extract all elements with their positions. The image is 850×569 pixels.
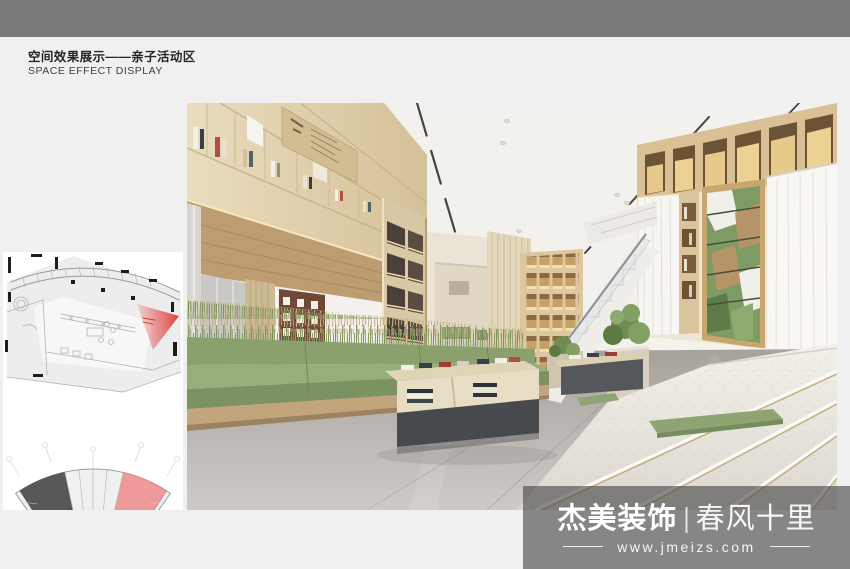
floor-plan-panel (3, 252, 183, 510)
brand-website: www.jmeizs.com (617, 539, 755, 555)
detail-plan (5, 254, 181, 392)
section-header: 空间效果展示——亲子活动区 SPACE EFFECT DISPLAY (28, 50, 196, 78)
presentation-slide: 空间效果展示——亲子活动区 SPACE EFFECT DISPLAY (0, 0, 850, 569)
floor-plan-drawing (3, 252, 183, 510)
brand-divider: | (683, 500, 689, 537)
key-plan (7, 443, 180, 511)
watermark-url-row: www.jmeizs.com (563, 539, 809, 555)
bookshelf-pier (679, 191, 699, 334)
brand-slogan: 春风十里 (696, 503, 816, 535)
page-title: 空间效果展示——亲子活动区 (28, 50, 196, 64)
interior-render (187, 103, 837, 510)
dash-left (563, 546, 603, 548)
curtain-right (767, 163, 837, 353)
render-illustration (187, 103, 837, 510)
watermark-brand-row: 杰美装饰 | 春风十里 (557, 503, 815, 535)
brand-name: 杰美装饰 (557, 503, 677, 535)
dash-right (770, 546, 810, 548)
brand-watermark: 杰美装饰 | 春风十里 www.jmeizs.com (523, 486, 850, 569)
camo-art-panel (702, 179, 765, 349)
top-gray-bar (0, 0, 850, 37)
window-wall (637, 103, 837, 365)
page-subtitle: SPACE EFFECT DISPLAY (28, 65, 196, 78)
